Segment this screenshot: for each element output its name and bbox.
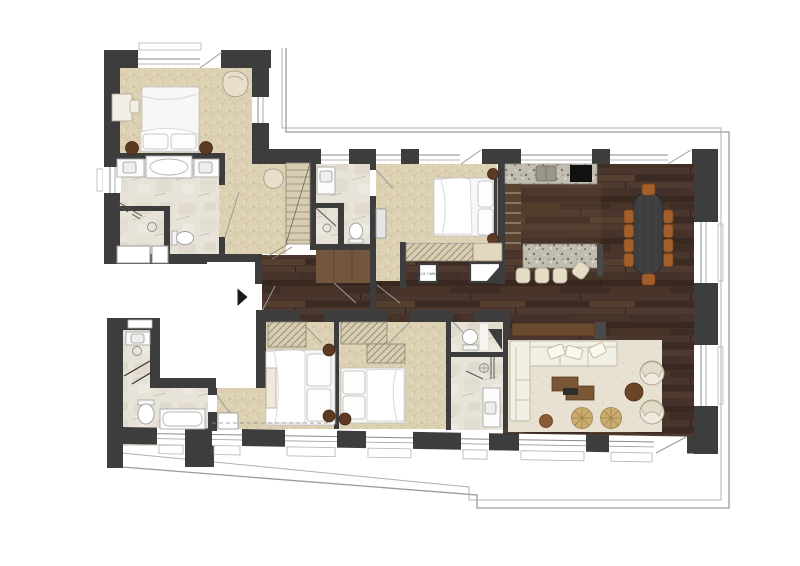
svg-text:LG + WM: LG + WM (421, 272, 436, 276)
